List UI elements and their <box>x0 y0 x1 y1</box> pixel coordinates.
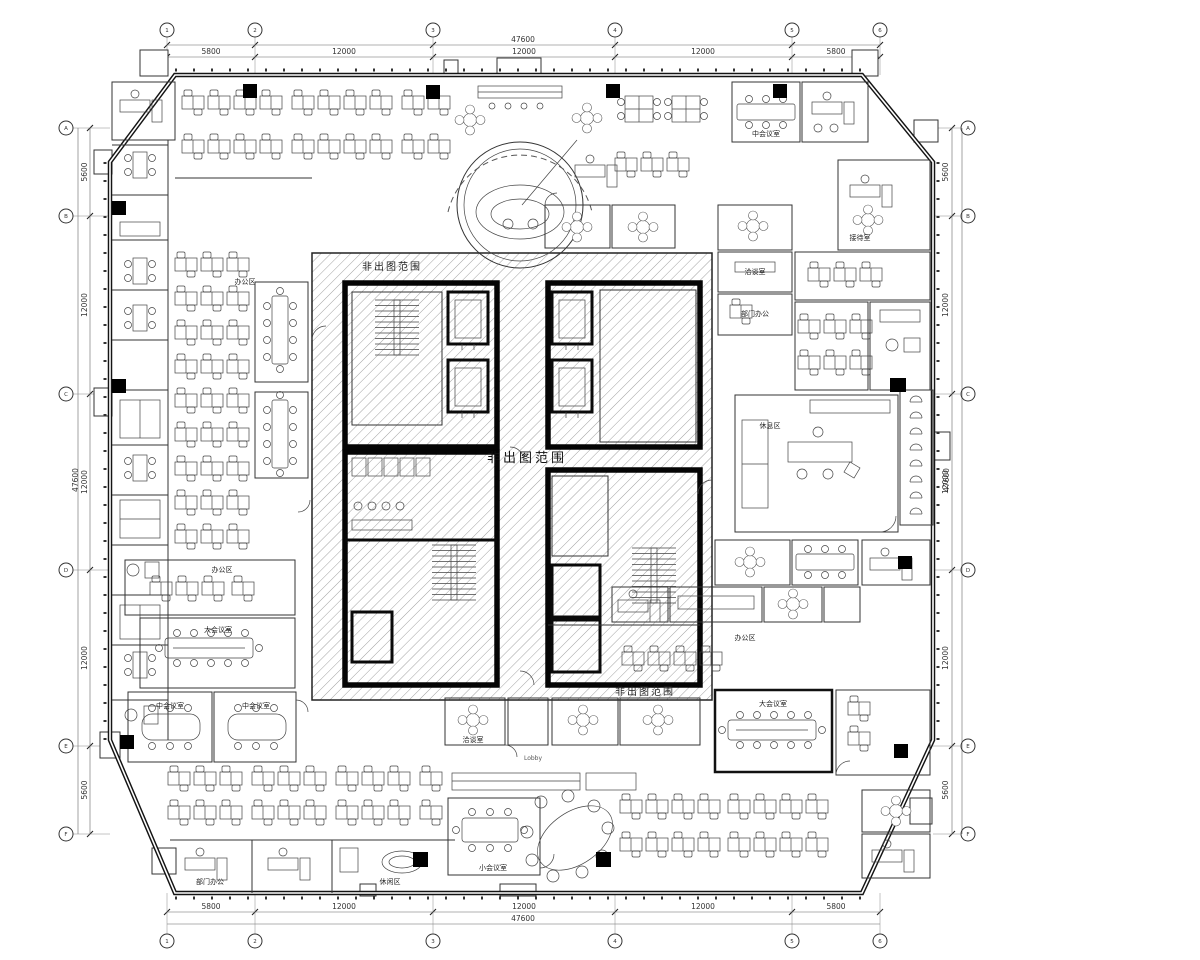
stair-pod <box>852 50 878 76</box>
lounge-label: 休息区 <box>760 421 781 430</box>
open-office-label: 办公区 <box>735 633 756 642</box>
pantry-appliance <box>340 848 358 872</box>
column <box>243 84 257 98</box>
svg-text:6: 6 <box>878 28 882 34</box>
svg-text:4: 4 <box>613 28 617 34</box>
dim-top-seg: 12000 <box>332 47 356 56</box>
open-office-label: 办公区 <box>235 277 256 286</box>
entrance-canopy <box>497 58 541 75</box>
column <box>596 852 611 867</box>
stair-pod <box>914 120 938 142</box>
column <box>606 84 620 98</box>
svg-text:5: 5 <box>790 28 794 34</box>
dim-bottom-seg: 5800 <box>826 902 845 911</box>
round-table <box>455 105 485 135</box>
mid-meeting-label: 中会议室 <box>752 129 780 138</box>
dim-top-total: 47600 <box>511 35 535 44</box>
column <box>413 852 428 867</box>
dim-left-seg: 12000 <box>80 646 89 670</box>
dim-top-seg: 12000 <box>691 47 715 56</box>
svg-text:A: A <box>966 126 970 132</box>
mid-meeting-label: 中会议室 <box>242 701 270 710</box>
column <box>773 84 787 98</box>
svg-text:3: 3 <box>431 939 435 945</box>
column <box>120 735 134 749</box>
talk-room-label: 洽谈室 <box>745 267 766 276</box>
booth-table <box>125 152 156 178</box>
dim-left-seg: 12000 <box>80 293 89 317</box>
svg-text:C: C <box>64 392 68 398</box>
mid-meeting-label: 中会议室 <box>156 701 184 710</box>
left-strip-rooms <box>112 82 175 740</box>
dept-office-label: 部门办公 <box>741 309 769 318</box>
dim-left-total: 47600 <box>71 468 80 492</box>
dim-top-seg: 5800 <box>201 47 220 56</box>
column <box>894 744 908 758</box>
talk-room-label: 洽谈室 <box>463 735 484 744</box>
round-table <box>572 103 602 133</box>
svg-text:1: 1 <box>165 939 169 945</box>
svg-text:2: 2 <box>253 939 257 945</box>
column <box>898 556 912 569</box>
pantry-room <box>870 302 930 390</box>
core-label: 非出图范围 <box>615 685 675 698</box>
svg-text:6: 6 <box>878 939 882 945</box>
svg-text:A: A <box>64 126 68 132</box>
large-meeting-label: 大会议室 <box>204 625 232 634</box>
dim-right-seg: 12000 <box>941 646 950 670</box>
svg-text:4: 4 <box>613 939 617 945</box>
svg-text:B: B <box>966 214 970 220</box>
executive-suite <box>735 395 898 532</box>
booth-table <box>125 305 156 331</box>
dim-right-seg: 5600 <box>941 162 950 181</box>
reception-desk <box>476 185 564 239</box>
dim-bottom-total: 47600 <box>511 914 535 923</box>
column <box>112 379 126 393</box>
dim-right-seg: 5600 <box>941 780 950 799</box>
stair-pod <box>910 798 932 824</box>
svg-text:2: 2 <box>253 28 257 34</box>
svg-text:E: E <box>966 744 970 750</box>
large-meeting-label: 大会议室 <box>759 699 787 708</box>
column <box>112 201 126 215</box>
floor-plan-drawing: 47600 5800 12000 12000 12000 5800 47600 … <box>0 0 1200 960</box>
dim-bottom-seg: 12000 <box>512 902 536 911</box>
lobby-label: Lobby <box>524 755 543 762</box>
column <box>890 378 906 392</box>
lounge-strip <box>900 390 933 525</box>
svg-text:C: C <box>966 392 970 398</box>
booth-table <box>125 258 156 284</box>
meeting-room-left <box>255 392 308 478</box>
dim-left-seg: 5600 <box>80 162 89 181</box>
open-office-label: 办公区 <box>212 565 233 574</box>
small-meeting-label: 小会议室 <box>479 863 507 872</box>
booth-table <box>125 455 156 481</box>
dim-right-seg: 12000 <box>941 293 950 317</box>
dept-office-room <box>125 560 295 615</box>
leisure-label: 休闲区 <box>380 877 401 886</box>
grid-bubbles-bottom: 123456 <box>160 934 887 948</box>
floor-plan-page: 47600 5800 12000 12000 12000 5800 47600 … <box>0 0 1200 960</box>
desk-pod <box>618 96 661 122</box>
dim-bottom-seg: 12000 <box>691 902 715 911</box>
svg-text:E: E <box>64 744 68 750</box>
dim-left-seg: 5600 <box>80 780 89 799</box>
dept-office-label: 部门办公 <box>196 877 224 886</box>
core-label: 非出图范围 <box>487 451 567 466</box>
grid-bubbles-right: ABCDEF <box>961 121 975 841</box>
svg-text:F: F <box>64 832 67 838</box>
stair-pod <box>140 50 168 76</box>
svg-text:D: D <box>966 568 970 574</box>
svg-text:3: 3 <box>431 28 435 34</box>
svg-text:5: 5 <box>790 939 794 945</box>
left-open-office <box>175 252 310 549</box>
reception-rotunda <box>448 140 592 268</box>
dim-right-seg: 12000 <box>941 470 950 494</box>
bottom-center-zone <box>445 698 700 883</box>
column <box>426 85 440 99</box>
central-core <box>312 253 712 700</box>
core-hatch-zone <box>312 253 712 700</box>
desk-pod <box>665 96 708 122</box>
stair-pod <box>934 432 950 460</box>
meeting-room-left <box>255 282 308 382</box>
dim-top-seg: 5800 <box>826 47 845 56</box>
svg-text:B: B <box>64 214 68 220</box>
dim-bottom-seg: 12000 <box>332 902 356 911</box>
svg-text:D: D <box>64 568 68 574</box>
dim-top-seg: 12000 <box>512 47 536 56</box>
reception-room-label: 接待室 <box>850 233 871 242</box>
lobby-counter <box>452 773 580 790</box>
svg-text:1: 1 <box>165 28 169 34</box>
core-label: 非出图范围 <box>362 260 422 273</box>
dim-left-seg: 12000 <box>80 470 89 494</box>
top-office-band <box>175 82 930 250</box>
dim-bottom-seg: 5800 <box>201 902 220 911</box>
svg-text:F: F <box>966 832 969 838</box>
executive-desk <box>788 442 852 462</box>
